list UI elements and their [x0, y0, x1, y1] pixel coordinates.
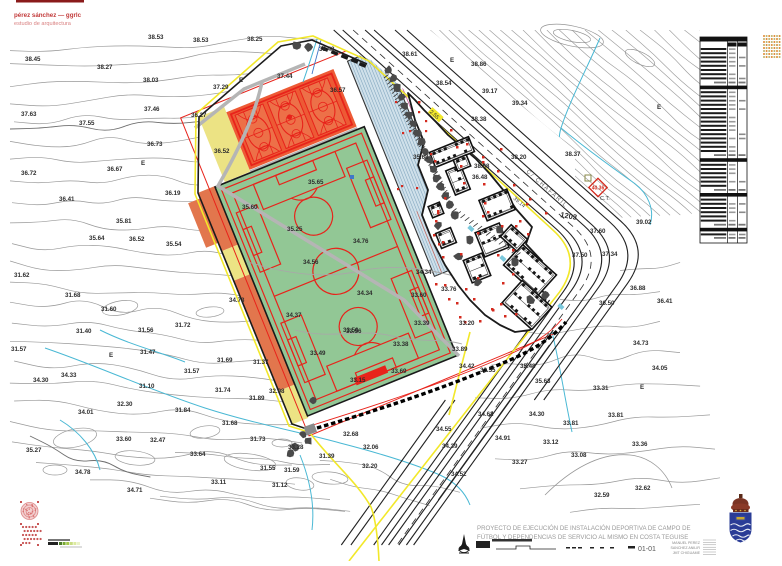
svg-text:37.60: 37.60	[590, 228, 606, 235]
svg-text:36.88: 36.88	[630, 285, 646, 292]
svg-text:38.53: 38.53	[193, 37, 209, 44]
svg-text:31.74: 31.74	[215, 387, 231, 394]
svg-text:33.36: 33.36	[632, 441, 648, 448]
svg-text:33.08: 33.08	[571, 452, 587, 459]
svg-text:34.30: 34.30	[529, 411, 545, 418]
svg-text:SANCHEZ ANILIR: SANCHEZ ANILIR	[670, 546, 700, 550]
svg-text:33.55: 33.55	[480, 367, 496, 374]
svg-text:31.56: 31.56	[138, 327, 154, 334]
svg-text:35.25: 35.25	[287, 226, 303, 233]
svg-text:33.28: 33.28	[288, 444, 304, 451]
svg-text:31.57: 31.57	[184, 368, 200, 375]
svg-text:34.05: 34.05	[652, 365, 668, 372]
svg-text:34.73: 34.73	[633, 340, 649, 347]
svg-text:34.39: 34.39	[442, 443, 458, 450]
svg-text:40.36: 40.36	[592, 186, 605, 192]
svg-text:35.27: 35.27	[26, 447, 42, 454]
svg-text:32.59: 32.59	[594, 492, 610, 499]
svg-text:31.69: 31.69	[217, 357, 233, 364]
svg-text:32.06: 32.06	[363, 444, 379, 451]
svg-text:38.61: 38.61	[402, 51, 418, 58]
svg-text:33.15: 33.15	[350, 377, 366, 384]
svg-text:37.34: 37.34	[602, 251, 618, 258]
svg-text:34.56: 34.56	[303, 259, 319, 266]
svg-text:38.53: 38.53	[148, 34, 164, 41]
svg-text:37.50: 37.50	[572, 252, 588, 259]
svg-text:35.65: 35.65	[308, 179, 324, 186]
svg-text:37.63: 37.63	[21, 111, 37, 118]
svg-text:38.38: 38.38	[471, 116, 487, 123]
svg-text:E: E	[450, 57, 454, 64]
svg-text:PROYECTO DE EJECUCIÓN DE I: PROYECTO DE EJECUCIÓN DE INSTALACIÓN DEP…	[477, 525, 691, 532]
svg-text:34.30: 34.30	[33, 377, 49, 384]
svg-text:37.44: 37.44	[277, 73, 293, 80]
svg-text:36.19: 36.19	[165, 190, 181, 197]
svg-text:31.68: 31.68	[222, 420, 238, 427]
svg-text:33.49: 33.49	[310, 350, 326, 357]
svg-text:32.68: 32.68	[343, 431, 359, 438]
svg-text:JMT CHIGUAME: JMT CHIGUAME	[673, 551, 701, 555]
svg-text:38.48: 38.48	[319, 46, 335, 53]
svg-text:32.98: 32.98	[269, 388, 285, 395]
svg-text:38.86: 38.86	[471, 61, 487, 68]
svg-text:33.31: 33.31	[593, 385, 609, 392]
svg-text:33.81: 33.81	[608, 412, 624, 419]
svg-text:31.47: 31.47	[140, 349, 156, 356]
svg-text:31.62: 31.62	[14, 272, 30, 279]
svg-text:38.45: 38.45	[25, 56, 41, 63]
svg-text:33.27: 33.27	[512, 459, 528, 466]
svg-text:33.81: 33.81	[563, 420, 579, 427]
svg-text:31.59: 31.59	[284, 467, 300, 474]
svg-text:34.91: 34.91	[495, 435, 511, 442]
svg-text:34.52: 34.52	[451, 471, 467, 478]
svg-text:31.10: 31.10	[139, 383, 155, 390]
svg-text:37.46: 37.46	[144, 106, 160, 113]
svg-text:38.03: 38.03	[143, 77, 159, 84]
svg-text:35.60: 35.60	[242, 204, 258, 211]
svg-text:31.39: 31.39	[319, 453, 335, 460]
svg-text:35.68: 35.68	[413, 154, 429, 161]
svg-text:31.89: 31.89	[249, 395, 265, 402]
svg-text:E: E	[109, 352, 113, 359]
svg-text:34.01: 34.01	[78, 409, 94, 416]
svg-text:33.20: 33.20	[459, 320, 475, 327]
svg-text:01-01: 01-01	[638, 546, 656, 553]
svg-text:36.41: 36.41	[657, 298, 673, 305]
svg-text:36.57: 36.57	[330, 87, 346, 94]
svg-text:35.48: 35.48	[520, 363, 536, 370]
svg-text:37.29: 37.29	[213, 84, 229, 91]
svg-text:31.57: 31.57	[11, 346, 27, 353]
svg-text:36.52: 36.52	[129, 236, 145, 243]
svg-text:38.68: 38.68	[474, 163, 490, 170]
svg-text:38.37: 38.37	[565, 151, 581, 158]
svg-text:33.76: 33.76	[441, 286, 457, 293]
svg-text:33.38: 33.38	[393, 341, 409, 348]
svg-text:31.60: 31.60	[101, 306, 117, 313]
svg-text:34.55: 34.55	[436, 426, 452, 433]
svg-text:31.37: 31.37	[253, 359, 269, 366]
svg-text:36.48: 36.48	[472, 174, 488, 181]
svg-text:31.72: 31.72	[175, 322, 191, 329]
svg-text:E: E	[239, 77, 243, 84]
svg-text:E: E	[640, 384, 644, 391]
svg-text:34.37: 34.37	[286, 312, 302, 319]
svg-text:MANUEL PEREZ: MANUEL PEREZ	[672, 541, 701, 545]
svg-text:34.34: 34.34	[357, 290, 373, 297]
svg-text:34.78: 34.78	[75, 469, 91, 476]
svg-text:37.55: 37.55	[79, 120, 95, 127]
svg-text:36.72: 36.72	[21, 170, 37, 177]
svg-text:31.73: 31.73	[250, 436, 266, 443]
svg-text:32.20: 32.20	[362, 463, 378, 470]
svg-text:pérez sánchez — ggrlc: pérez sánchez — ggrlc	[14, 12, 82, 19]
svg-text:39.02: 39.02	[636, 219, 652, 226]
svg-text:33.39: 33.39	[414, 320, 430, 327]
svg-text:32.30: 32.30	[117, 401, 133, 408]
svg-text:38.27: 38.27	[97, 64, 113, 71]
svg-text:34.34: 34.34	[416, 269, 432, 276]
svg-text:33.56: 33.56	[343, 327, 359, 334]
svg-text:34.33: 34.33	[61, 372, 77, 379]
svg-text:35.64: 35.64	[89, 235, 105, 242]
svg-text:E: E	[657, 104, 661, 111]
svg-text:33.12: 33.12	[543, 439, 559, 446]
svg-text:33.64: 33.64	[190, 451, 206, 458]
svg-text:33.60: 33.60	[116, 436, 132, 443]
svg-text:38.25: 38.25	[247, 36, 263, 43]
svg-text:34.71: 34.71	[127, 487, 143, 494]
svg-text:32.47: 32.47	[150, 437, 166, 444]
svg-text:33.60: 33.60	[411, 292, 427, 299]
svg-text:36.52: 36.52	[214, 148, 230, 155]
svg-text:34.73: 34.73	[229, 297, 245, 304]
svg-text:31.55: 31.55	[260, 465, 276, 472]
svg-text:39.34: 39.34	[512, 100, 528, 107]
svg-text:33.89: 33.89	[452, 346, 468, 353]
svg-text:C.T.: C.T.	[600, 196, 610, 202]
svg-text:36.67: 36.67	[107, 166, 123, 173]
svg-text:36.27: 36.27	[191, 112, 207, 119]
svg-text:34.62: 34.62	[478, 411, 494, 418]
svg-text:39.17: 39.17	[482, 88, 498, 95]
svg-text:34.42: 34.42	[459, 363, 475, 370]
svg-text:31.40: 31.40	[76, 328, 92, 335]
svg-text:35.54: 35.54	[166, 241, 182, 248]
svg-text:36.41: 36.41	[59, 196, 75, 203]
svg-text:33.69: 33.69	[391, 368, 407, 375]
svg-text:31.68: 31.68	[65, 292, 81, 299]
svg-text:34.76: 34.76	[353, 238, 369, 245]
svg-text:35.63: 35.63	[535, 378, 551, 385]
svg-text:36.50: 36.50	[599, 300, 615, 307]
svg-text:estudio de arquitectura: estudio de arquitectura	[14, 21, 72, 27]
svg-text:38.54: 38.54	[436, 80, 452, 87]
svg-text:31.84: 31.84	[175, 407, 191, 414]
svg-text:33.11: 33.11	[211, 479, 227, 486]
svg-text:38.20: 38.20	[511, 154, 527, 161]
svg-text:36.73: 36.73	[147, 141, 163, 148]
svg-text:32.62: 32.62	[635, 485, 651, 492]
svg-text:31.12: 31.12	[272, 482, 288, 489]
svg-text:E: E	[141, 160, 145, 167]
svg-text:35.81: 35.81	[116, 218, 132, 225]
